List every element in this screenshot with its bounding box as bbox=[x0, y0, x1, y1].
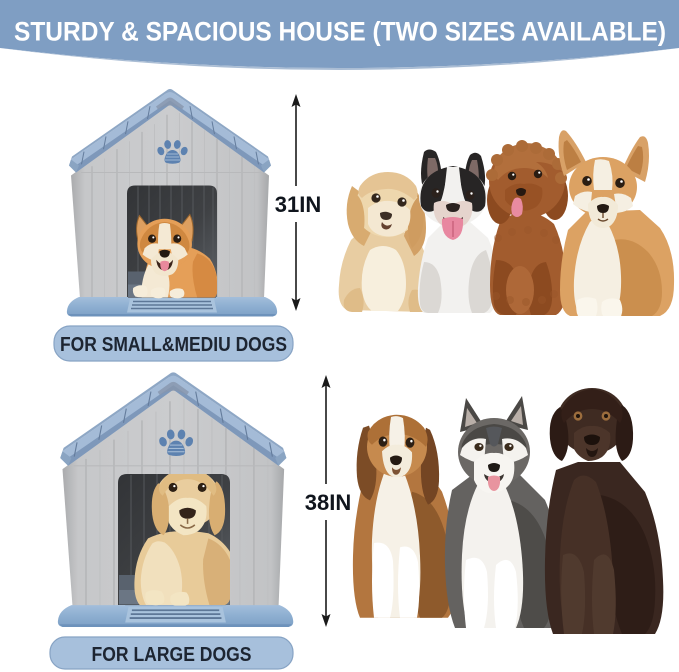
svg-text:FOR LARGE DOGS: FOR LARGE DOGS bbox=[92, 644, 252, 666]
svg-text:38IN: 38IN bbox=[305, 490, 351, 515]
svg-text:31IN: 31IN bbox=[275, 192, 321, 217]
svg-text:STURDY & SPACIOUS HOUSE (TWO S: STURDY & SPACIOUS HOUSE (TWO SIZES AVAIL… bbox=[14, 17, 666, 47]
svg-text:FOR SMALL&MEDIU DOGS: FOR SMALL&MEDIU DOGS bbox=[60, 334, 287, 356]
